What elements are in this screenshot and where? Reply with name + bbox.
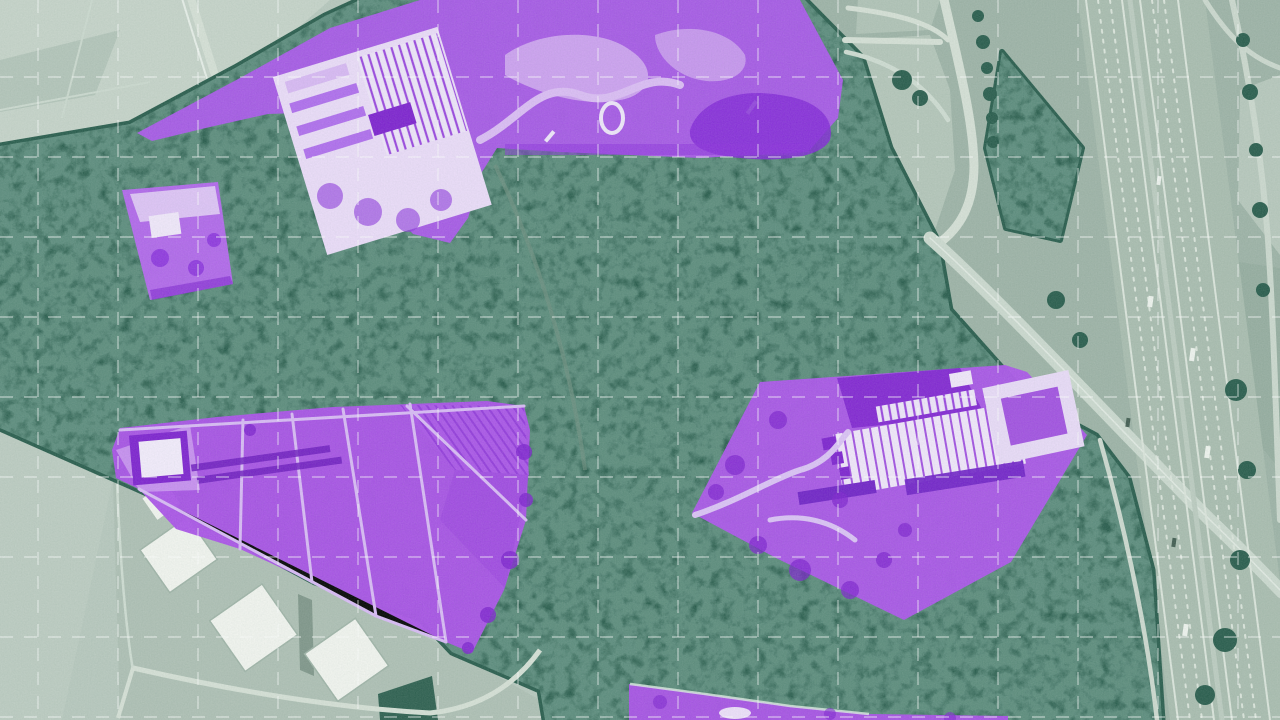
map-viewport[interactable]: [0, 0, 1280, 720]
film-grain: [0, 0, 1280, 720]
satellite-image: [0, 0, 1280, 720]
